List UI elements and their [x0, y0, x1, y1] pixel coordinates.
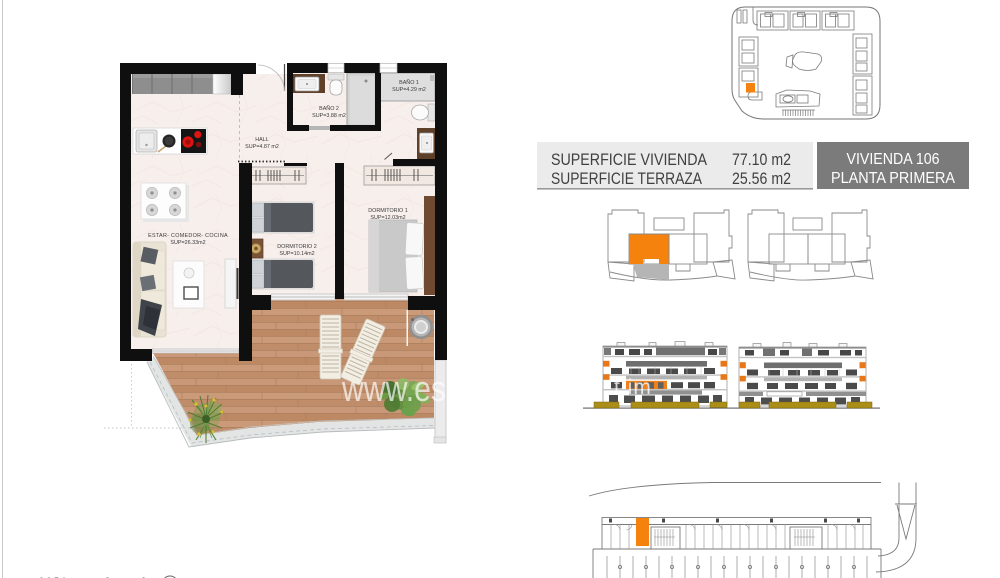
svg-text:SUP=26.33m2: SUP=26.33m2: [170, 240, 205, 246]
svg-text:HALL: HALL: [255, 137, 269, 143]
svg-text:DORMITORIO 1: DORMITORIO 1: [368, 208, 407, 214]
svg-text:SUPERFICIE VIVIENDA: SUPERFICIE VIVIENDA: [551, 151, 707, 169]
svg-text:PLANTA PRIMERA: PLANTA PRIMERA: [831, 170, 955, 187]
svg-text:25.56 m2: 25.56 m2: [732, 170, 791, 188]
svg-text:SUPERFICIE TERRAZA: SUPERFICIE TERRAZA: [551, 170, 702, 188]
svg-text:VIVIENDA 106: VIVIENDA 106: [847, 151, 940, 168]
svg-text:SUP=3.88 m2: SUP=3.88 m2: [312, 113, 346, 119]
svg-text:t.im: t.im: [614, 376, 652, 399]
svg-text:77.10 m2: 77.10 m2: [732, 151, 791, 169]
svg-text:SUP=4.29 m2: SUP=4.29 m2: [392, 87, 426, 93]
svg-text:BAÑO 2: BAÑO 2: [319, 105, 339, 112]
svg-text:SUP=4.87 m2: SUP=4.87 m2: [245, 144, 279, 150]
svg-text:BAÑO 1: BAÑO 1: [399, 79, 419, 86]
svg-text:ESTAR- COMEDOR- COCINA: ESTAR- COMEDOR- COCINA: [148, 233, 228, 239]
svg-text:SUP=12.03m2: SUP=12.03m2: [370, 215, 405, 221]
svg-text:SUP=10.14m2: SUP=10.14m2: [279, 251, 314, 257]
svg-text:DORMITORIO 2: DORMITORIO 2: [277, 244, 316, 250]
svg-text:www.es: www.es: [341, 368, 446, 409]
